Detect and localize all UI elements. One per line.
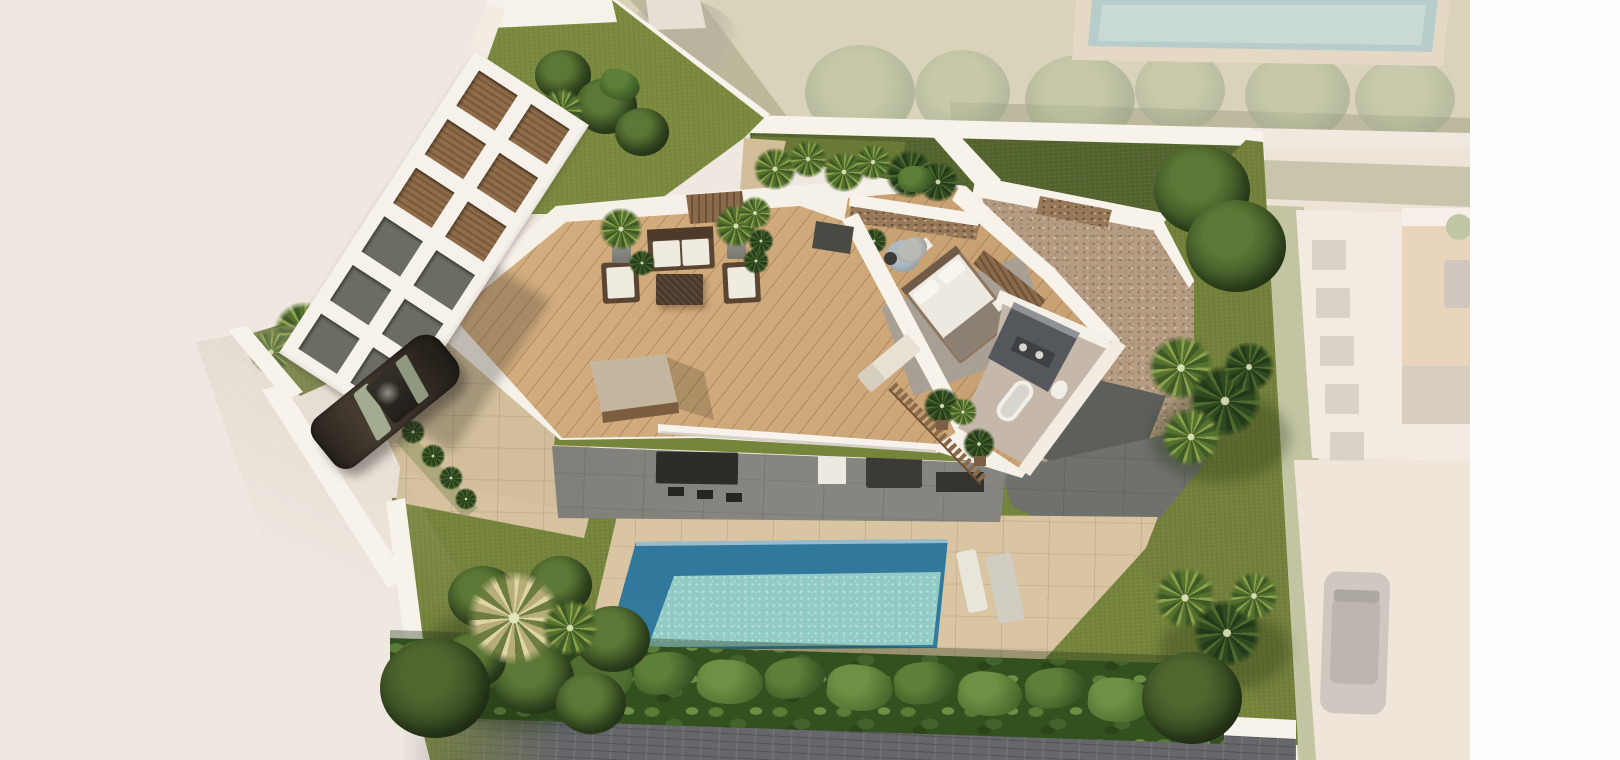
potted-plant-left <box>598 208 644 250</box>
faded-tree-row-5 <box>1245 52 1350 140</box>
patio-side-table <box>818 452 846 484</box>
sofa-cushion-right <box>682 239 710 266</box>
faded-building-window-4 <box>1325 384 1359 414</box>
driveway-agave-2 <box>420 444 446 468</box>
faded-neighbor-car <box>1320 571 1391 715</box>
faded-building-window-5 <box>1330 432 1364 462</box>
pergola-opening-shade <box>361 216 422 276</box>
deck-agave-left <box>628 250 656 276</box>
faded-car-roof <box>1330 597 1381 685</box>
driveway-agave-4 <box>454 488 478 510</box>
pergola-opening-shade <box>298 314 359 374</box>
pergola-opening-wood <box>425 119 486 179</box>
sofa-cushion-left <box>653 240 681 267</box>
wicker-coffee-table <box>656 274 703 305</box>
outdoor-sofa <box>647 226 715 271</box>
garden-palm-small <box>540 600 600 656</box>
patio-stool-3 <box>726 493 742 502</box>
white-margin <box>1470 0 1620 760</box>
faded-building-window-3 <box>1320 336 1354 366</box>
front-lawn-shrub-3 <box>615 108 669 156</box>
pergola-opening-wood <box>393 168 454 228</box>
east-palm-7 <box>1228 572 1280 620</box>
pergola-opening-wood <box>508 104 569 164</box>
faded-terrace-awning <box>1402 366 1470 424</box>
pergola-opening-wood <box>477 153 538 213</box>
east-palm-4 <box>1222 342 1276 392</box>
patio-stool-1 <box>668 487 684 496</box>
dark-leafy-tree-se <box>1142 652 1242 744</box>
sink-2 <box>1034 350 1045 361</box>
dark-leafy-tree-sw <box>380 638 490 738</box>
sink-1 <box>1018 342 1029 353</box>
pergola-opening-wood <box>445 201 506 261</box>
entry-yucca-2 <box>748 228 774 254</box>
round-side-table <box>884 252 897 265</box>
dark-leafy-tree-ne-2 <box>1186 200 1286 292</box>
planter-pot-1 <box>936 420 948 430</box>
planter-pot-2 <box>974 456 986 466</box>
pergola-opening-wood <box>456 70 517 130</box>
banana-tree-6 <box>556 672 626 734</box>
faded-terrace-sofa <box>1444 260 1470 308</box>
villa-aerial-render <box>0 0 1620 760</box>
driveway-agave-3 <box>438 466 464 490</box>
patio-dining-table <box>656 451 739 484</box>
pergola-opening-shade <box>330 265 391 325</box>
east-palm-3 <box>1160 408 1222 466</box>
balcony-planter-2 <box>948 398 978 426</box>
faded-tree-row-6 <box>1355 58 1455 140</box>
faded-car-windshield <box>1333 589 1379 603</box>
faded-terrace-plant <box>1446 214 1472 240</box>
entry-yucca-1 <box>738 196 772 230</box>
faded-building-window-1 <box>1312 240 1346 270</box>
patio-sofa <box>866 456 922 488</box>
pergola-opening-shade <box>413 250 474 310</box>
faded-building-window-2 <box>1316 288 1350 318</box>
patio-stool-2 <box>697 490 713 499</box>
